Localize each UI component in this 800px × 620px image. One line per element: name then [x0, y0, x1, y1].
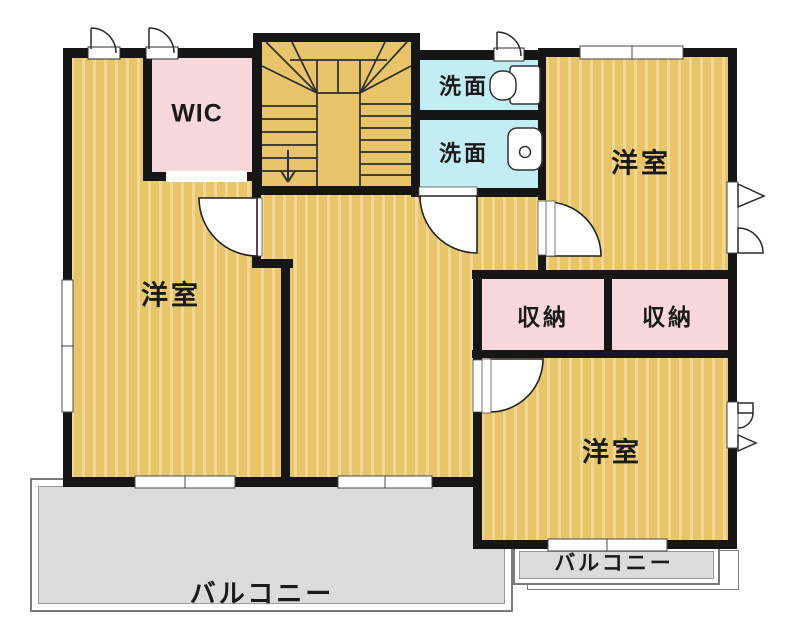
stair-wall: [253, 33, 262, 195]
wall: [281, 259, 290, 487]
wall: [728, 48, 737, 182]
label-washroom-bottom: 洗面: [439, 136, 489, 168]
wall: [143, 172, 167, 181]
wall: [63, 477, 135, 487]
stair-wall: [253, 186, 420, 195]
wall: [728, 280, 737, 402]
label-bedroom-left: 洋室: [141, 274, 201, 313]
wall: [63, 48, 72, 280]
stair-wall: [253, 33, 420, 42]
label-wic: WIC: [171, 100, 223, 129]
wall: [604, 270, 612, 358]
wall: [143, 48, 152, 180]
floorplan: WIC 洗面 洗面 洋室 洋室 洋室 収納 収納 バルコニー バルコニー: [0, 0, 800, 620]
wall: [728, 448, 737, 549]
label-bedroom-bottom-right: 洋室: [582, 431, 642, 470]
wall: [411, 188, 419, 197]
wall: [63, 412, 72, 487]
wall: [667, 540, 737, 549]
label-balcony-main: バルコニー: [190, 574, 334, 611]
label-bedroom-top-right: 洋室: [611, 142, 671, 181]
wall: [473, 412, 482, 547]
label-storage-left: 収納: [517, 298, 569, 332]
wall: [477, 188, 546, 197]
wall: [473, 540, 548, 549]
side-window-icons: [738, 184, 764, 451]
label-storage-right: 収納: [642, 298, 694, 332]
wall: [63, 48, 261, 58]
wall: [411, 50, 497, 60]
label-washroom-top: 洗面: [439, 69, 489, 101]
wall: [538, 48, 546, 200]
wall: [411, 110, 546, 120]
room-staircase-floor: [253, 33, 420, 195]
wall: [235, 477, 338, 487]
label-balcony-small: バルコニー: [554, 547, 674, 577]
wall: [538, 255, 546, 270]
wall: [473, 270, 482, 360]
wall: [472, 350, 737, 358]
